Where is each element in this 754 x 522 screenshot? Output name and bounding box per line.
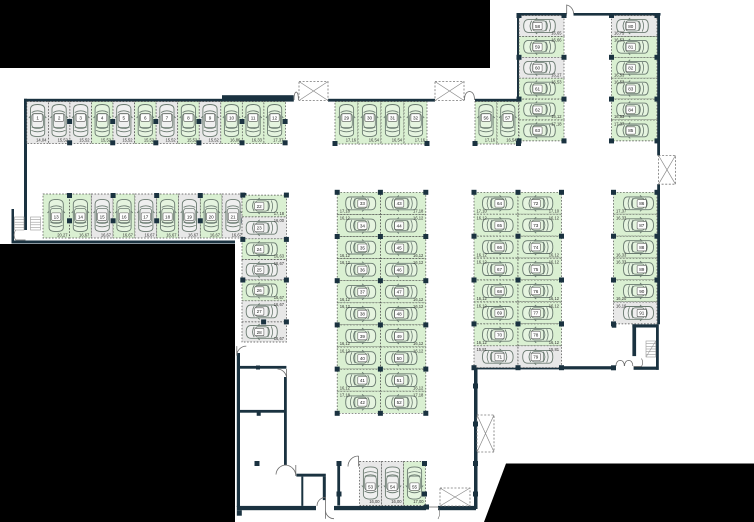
- svg-text:78: 78: [533, 333, 539, 338]
- svg-text:16,65: 16,65: [551, 31, 562, 36]
- svg-text:55: 55: [412, 484, 418, 489]
- svg-text:46: 46: [397, 268, 403, 273]
- svg-text:58: 58: [535, 24, 541, 29]
- svg-text:2: 2: [58, 115, 61, 120]
- svg-text:15,52: 15,52: [165, 138, 176, 143]
- svg-text:10: 10: [229, 115, 235, 120]
- svg-text:14: 14: [78, 214, 84, 219]
- svg-text:59: 59: [535, 45, 541, 50]
- svg-text:16,12: 16,12: [340, 341, 351, 346]
- svg-text:31: 31: [390, 115, 396, 120]
- svg-text:17,10: 17,10: [477, 208, 488, 213]
- svg-text:63: 63: [535, 128, 541, 133]
- svg-text:15,81: 15,81: [549, 347, 560, 352]
- svg-text:15,52: 15,52: [58, 138, 69, 143]
- svg-text:27: 27: [257, 309, 263, 314]
- svg-text:74: 74: [533, 245, 539, 250]
- svg-text:16,54: 16,54: [369, 138, 380, 143]
- svg-text:15: 15: [100, 214, 106, 219]
- svg-text:16,53: 16,53: [614, 114, 625, 119]
- svg-text:16,12: 16,12: [413, 253, 424, 258]
- svg-text:77: 77: [533, 311, 539, 316]
- svg-text:16,00: 16,00: [369, 499, 380, 504]
- svg-text:17,18: 17,18: [413, 393, 424, 398]
- svg-text:16,12: 16,12: [340, 253, 351, 258]
- svg-text:20,27: 20,27: [57, 233, 68, 238]
- svg-text:17,37: 17,37: [614, 121, 625, 126]
- svg-text:17,37: 17,37: [273, 138, 284, 143]
- svg-text:23: 23: [257, 226, 263, 231]
- svg-text:16: 16: [121, 214, 127, 219]
- svg-text:16,67: 16,67: [144, 233, 155, 238]
- svg-text:17,18: 17,18: [340, 393, 351, 398]
- svg-text:16,67: 16,67: [79, 233, 90, 238]
- svg-text:14,04: 14,04: [36, 138, 47, 143]
- svg-text:45: 45: [397, 245, 403, 250]
- svg-text:67: 67: [497, 267, 503, 272]
- svg-text:40: 40: [360, 356, 366, 361]
- svg-text:53: 53: [368, 484, 374, 489]
- svg-text:30: 30: [367, 115, 373, 120]
- svg-text:15,52: 15,52: [79, 138, 90, 143]
- svg-text:3: 3: [79, 115, 82, 120]
- svg-text:16,27: 16,27: [551, 72, 562, 77]
- svg-text:22: 22: [257, 204, 263, 209]
- svg-text:16,54: 16,54: [392, 138, 403, 143]
- svg-text:51: 51: [397, 378, 403, 383]
- svg-text:43: 43: [397, 201, 403, 206]
- svg-text:16,12: 16,12: [477, 296, 488, 301]
- svg-text:17,16: 17,16: [485, 138, 496, 143]
- svg-text:81: 81: [628, 45, 634, 50]
- svg-text:16,12: 16,12: [477, 340, 488, 345]
- svg-text:16,53: 16,53: [614, 38, 625, 43]
- svg-text:76: 76: [533, 289, 539, 294]
- svg-text:69: 69: [497, 311, 503, 316]
- svg-text:82: 82: [628, 66, 634, 71]
- svg-text:44: 44: [397, 223, 403, 228]
- svg-text:68: 68: [497, 289, 503, 294]
- svg-text:33: 33: [360, 201, 366, 206]
- svg-text:17,18: 17,18: [551, 121, 562, 126]
- svg-text:15,52: 15,52: [187, 138, 198, 143]
- svg-text:11: 11: [251, 115, 256, 120]
- svg-text:16,12: 16,12: [477, 252, 488, 257]
- svg-text:86: 86: [639, 201, 645, 206]
- svg-text:5: 5: [123, 115, 126, 120]
- svg-text:16,86: 16,86: [230, 138, 241, 143]
- svg-text:79: 79: [533, 355, 539, 360]
- svg-text:16,12: 16,12: [413, 348, 424, 353]
- svg-text:16,33: 16,33: [616, 252, 627, 257]
- svg-text:16,67: 16,67: [274, 302, 285, 307]
- svg-text:83: 83: [628, 86, 634, 91]
- svg-text:29: 29: [344, 115, 350, 120]
- svg-text:16,67: 16,67: [274, 295, 285, 300]
- svg-text:84: 84: [628, 107, 634, 112]
- svg-text:24: 24: [257, 247, 263, 252]
- svg-text:17,00: 17,00: [413, 499, 424, 504]
- svg-text:16,33: 16,33: [616, 259, 627, 264]
- svg-text:16,12: 16,12: [413, 341, 424, 346]
- svg-text:16,33: 16,33: [616, 216, 627, 221]
- svg-text:1: 1: [36, 115, 39, 120]
- svg-text:16,12: 16,12: [549, 296, 560, 301]
- svg-text:17,18: 17,18: [274, 211, 285, 216]
- svg-text:16,12: 16,12: [413, 304, 424, 309]
- svg-text:16,66: 16,66: [551, 38, 562, 43]
- svg-text:91: 91: [639, 311, 645, 316]
- svg-text:16,54: 16,54: [506, 138, 517, 143]
- svg-text:16,67: 16,67: [101, 233, 112, 238]
- svg-text:16,12: 16,12: [477, 259, 488, 264]
- svg-text:15,81: 15,81: [477, 347, 488, 352]
- svg-text:87: 87: [639, 223, 645, 228]
- svg-text:61: 61: [535, 86, 541, 91]
- svg-text:60: 60: [535, 66, 541, 71]
- svg-text:56: 56: [483, 115, 489, 120]
- svg-text:49: 49: [397, 334, 403, 339]
- svg-text:16,12: 16,12: [340, 216, 351, 221]
- svg-text:16,12: 16,12: [549, 252, 560, 257]
- svg-text:16,12: 16,12: [413, 216, 424, 221]
- svg-text:17: 17: [143, 214, 149, 219]
- svg-text:72: 72: [533, 201, 539, 206]
- svg-text:16,12: 16,12: [549, 216, 560, 221]
- svg-text:66: 66: [497, 245, 503, 250]
- svg-text:15,52: 15,52: [101, 138, 112, 143]
- svg-text:16,00: 16,00: [274, 218, 285, 223]
- svg-text:16,12: 16,12: [340, 385, 351, 390]
- svg-text:4: 4: [101, 115, 104, 120]
- svg-text:15,52: 15,52: [122, 138, 133, 143]
- svg-text:47: 47: [397, 290, 403, 295]
- svg-text:16,00: 16,00: [391, 499, 402, 504]
- svg-text:9: 9: [209, 115, 212, 120]
- svg-text:70: 70: [497, 333, 503, 338]
- svg-text:7: 7: [166, 115, 169, 120]
- svg-text:8: 8: [187, 115, 190, 120]
- svg-text:16,67: 16,67: [166, 233, 177, 238]
- svg-text:16,67: 16,67: [210, 233, 221, 238]
- svg-text:13: 13: [54, 214, 60, 219]
- svg-text:16,53: 16,53: [551, 80, 562, 85]
- svg-text:16,12: 16,12: [549, 303, 560, 308]
- svg-text:64: 64: [497, 201, 503, 206]
- svg-text:18: 18: [165, 214, 171, 219]
- svg-text:15,52: 15,52: [144, 138, 155, 143]
- svg-text:17,10: 17,10: [549, 208, 560, 213]
- svg-text:17,16: 17,16: [415, 138, 426, 143]
- svg-text:16,53: 16,53: [614, 80, 625, 85]
- svg-text:16,75: 16,75: [614, 31, 625, 36]
- svg-text:16,33: 16,33: [252, 138, 263, 143]
- svg-text:19: 19: [187, 214, 193, 219]
- svg-text:12: 12: [272, 115, 278, 120]
- svg-text:16,12: 16,12: [340, 260, 351, 265]
- svg-text:16,67: 16,67: [188, 233, 199, 238]
- svg-text:16,12: 16,12: [340, 304, 351, 309]
- svg-text:16,12: 16,12: [549, 259, 560, 264]
- svg-text:41: 41: [360, 378, 366, 383]
- svg-text:16,63: 16,63: [274, 254, 285, 259]
- svg-text:15,52: 15,52: [209, 138, 220, 143]
- svg-text:17,18: 17,18: [340, 209, 351, 214]
- svg-text:52: 52: [397, 400, 403, 405]
- svg-text:36: 36: [360, 268, 366, 273]
- svg-text:73: 73: [533, 223, 539, 228]
- svg-text:17,37: 17,37: [616, 208, 627, 213]
- svg-text:16,12: 16,12: [477, 216, 488, 221]
- svg-text:75: 75: [533, 267, 539, 272]
- svg-text:17,16: 17,16: [346, 138, 357, 143]
- svg-text:85: 85: [628, 128, 634, 133]
- svg-text:89: 89: [639, 267, 645, 272]
- svg-text:57: 57: [505, 115, 511, 120]
- svg-text:37: 37: [360, 290, 366, 295]
- svg-text:32: 32: [413, 115, 419, 120]
- svg-text:16,12: 16,12: [477, 303, 488, 308]
- svg-text:16,12: 16,12: [413, 297, 424, 302]
- svg-text:65: 65: [497, 223, 503, 228]
- svg-text:16,53: 16,53: [614, 72, 625, 77]
- svg-text:20: 20: [209, 214, 215, 219]
- svg-text:16,12: 16,12: [549, 340, 560, 345]
- svg-text:54: 54: [390, 484, 396, 489]
- svg-text:16,12: 16,12: [340, 348, 351, 353]
- svg-text:21: 21: [230, 214, 236, 219]
- svg-text:26: 26: [257, 288, 263, 293]
- svg-text:16,16: 16,16: [616, 303, 627, 308]
- svg-text:16,20: 16,20: [616, 296, 627, 301]
- svg-text:38: 38: [360, 312, 366, 317]
- svg-text:25: 25: [257, 268, 263, 273]
- svg-text:16,67: 16,67: [274, 336, 285, 341]
- svg-text:16,12: 16,12: [413, 385, 424, 390]
- svg-text:6: 6: [144, 115, 147, 120]
- svg-text:90: 90: [639, 289, 645, 294]
- svg-text:42: 42: [360, 400, 366, 405]
- svg-text:50: 50: [397, 356, 403, 361]
- svg-text:48: 48: [397, 312, 403, 317]
- svg-text:16,67: 16,67: [274, 261, 285, 266]
- svg-text:16,67: 16,67: [123, 233, 134, 238]
- svg-text:17,18: 17,18: [413, 209, 424, 214]
- svg-text:16,12: 16,12: [340, 297, 351, 302]
- svg-text:35: 35: [360, 245, 366, 250]
- svg-text:88: 88: [639, 245, 645, 250]
- svg-text:28: 28: [257, 330, 263, 335]
- svg-text:16,67: 16,67: [232, 233, 243, 238]
- svg-text:16,12: 16,12: [551, 114, 562, 119]
- svg-text:71: 71: [497, 355, 503, 360]
- svg-text:39: 39: [360, 334, 366, 339]
- svg-text:62: 62: [535, 107, 541, 112]
- svg-text:34: 34: [360, 223, 366, 228]
- svg-text:80: 80: [628, 24, 634, 29]
- svg-text:16,12: 16,12: [413, 260, 424, 265]
